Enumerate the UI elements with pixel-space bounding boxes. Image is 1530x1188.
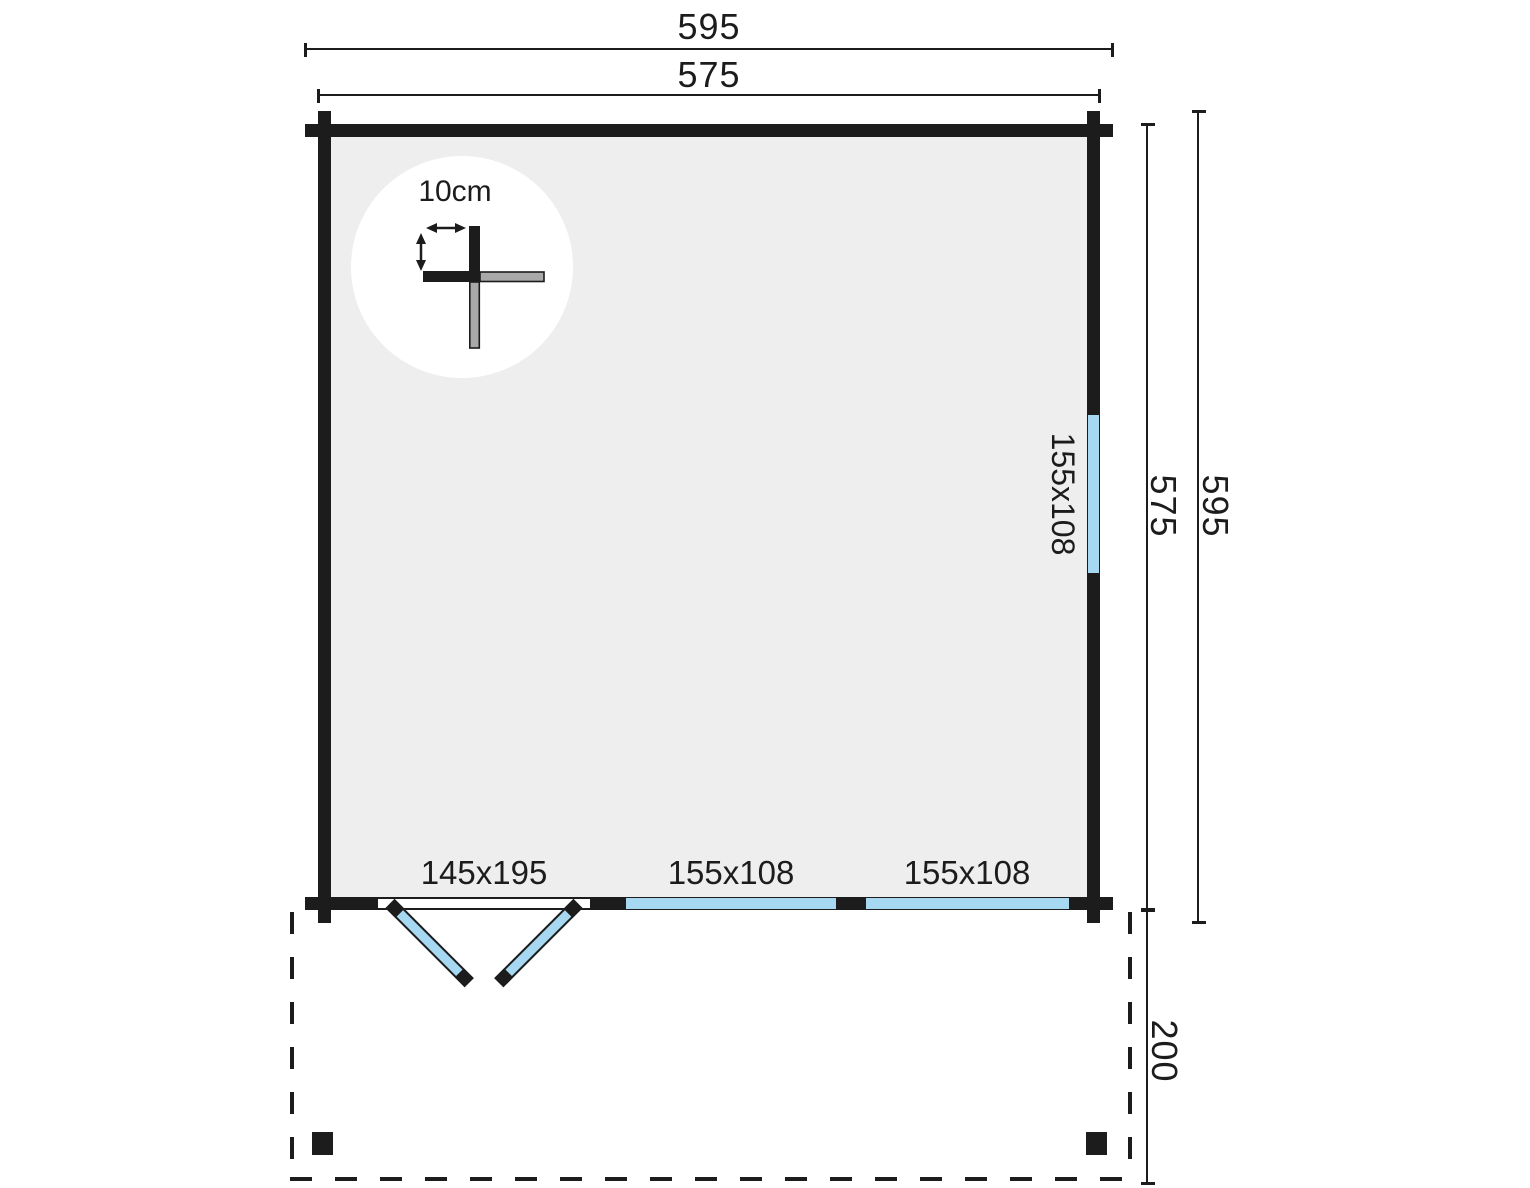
dim-depth-overall-label: 595 <box>1196 406 1234 606</box>
dim-depth-wall-label: 575 <box>1144 406 1182 606</box>
dim-width-overall-line <box>305 48 1113 50</box>
terrace-post-right <box>1086 1132 1107 1155</box>
log-end-vertical <box>470 282 480 348</box>
terrace-post-left <box>312 1132 333 1155</box>
door-leaf-left <box>385 899 473 987</box>
door-opening <box>378 897 590 910</box>
terrace-edge-bottom <box>290 1177 1132 1181</box>
terrace-edge-left <box>290 912 294 1180</box>
window-right <box>1087 414 1100 574</box>
window-bottom-right <box>865 897 1070 910</box>
wall-left <box>318 111 331 923</box>
dim-width-wall-label: 575 <box>609 56 809 94</box>
log-end-horizontal <box>480 272 544 282</box>
log-section-horizontal <box>423 271 480 282</box>
window-bottom-right-label: 155x108 <box>867 855 1067 891</box>
wall-thickness-label: 10cm <box>418 175 491 208</box>
dim-terrace-depth-label: 200 <box>1145 951 1183 1151</box>
door-leaf-left-end <box>455 968 474 987</box>
dim-width-overall-label: 595 <box>609 8 809 46</box>
door-leaf-right-end <box>494 968 513 987</box>
window-bottom-left-label: 155x108 <box>631 855 831 891</box>
door-leaf-right <box>494 899 582 987</box>
window-right-label: 155x108 <box>1045 394 1081 594</box>
window-bottom-left <box>625 897 837 910</box>
wall-thickness-detail: 10cm <box>350 155 576 381</box>
dim-width-wall-line <box>318 94 1100 96</box>
wall-top <box>305 124 1113 137</box>
terrace-edge-right <box>1128 912 1132 1180</box>
door-label: 145x195 <box>384 855 584 891</box>
floor-plan-canvas: 595 575 10cm 155x108 <box>0 0 1530 1188</box>
